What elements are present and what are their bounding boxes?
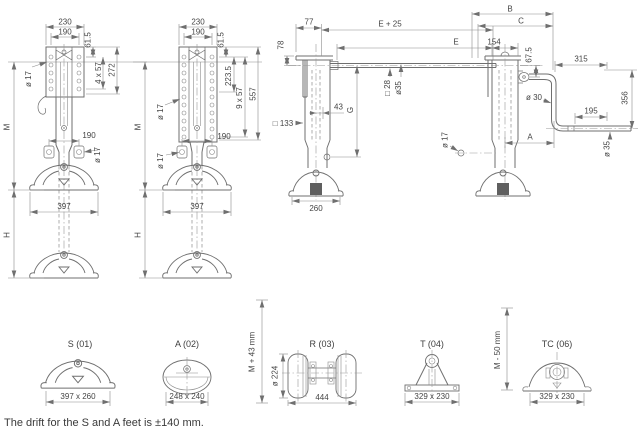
v1-dim-hole-pattern: 4 x 57 bbox=[94, 62, 103, 84]
v1-dim-hole-dia: ø 17 bbox=[24, 70, 33, 87]
v3-dim-shaft: E bbox=[453, 38, 458, 47]
v2-dim-upper-span: 223.5 bbox=[224, 65, 233, 86]
v2-dim-bolt-spacing: 190 bbox=[191, 28, 205, 37]
v1-dim-lift: H bbox=[3, 232, 12, 238]
v2-dim-lower-hole-dia: ø 17 bbox=[156, 152, 165, 169]
v3-dim-tube-size: □ 133 bbox=[273, 119, 294, 128]
v3-dim-shaft-plus: E + 25 bbox=[378, 20, 402, 29]
v2-dim-bracket-height: 557 bbox=[249, 87, 258, 101]
v3-dim-extension: G bbox=[346, 107, 355, 113]
v4-dim-arm-length: 315 bbox=[574, 55, 588, 64]
v1-dim-bolt-spacing: 190 bbox=[58, 28, 72, 37]
v4-dim-leg-depth: 154 bbox=[487, 38, 501, 47]
v2-dim-hole-dia: ø 17 bbox=[156, 103, 165, 120]
v4-dim-grip-length: 195 bbox=[584, 107, 598, 116]
foot-t-label: T (04) bbox=[420, 339, 444, 349]
foot-t-size: 329 x 230 bbox=[414, 392, 450, 401]
foot-a-label: A (02) bbox=[175, 339, 199, 349]
v3-dim-foot-depth: 260 bbox=[309, 204, 323, 213]
v2-dim-lower-bolt-spacing: 190 bbox=[217, 132, 231, 141]
v2-dim-foot-width: 397 bbox=[190, 202, 204, 211]
v4-dim-c: C bbox=[518, 17, 524, 26]
v2-dim-mount-height: M bbox=[134, 123, 143, 130]
foot-r-label: R (03) bbox=[309, 339, 334, 349]
drawing-caption: The drift for the S and A feet is ±140 m… bbox=[4, 417, 204, 429]
v4-dim-tube-dia: ø 30 bbox=[526, 93, 543, 102]
foot-s-size: 397 x 260 bbox=[60, 392, 96, 401]
v1-dim-foot-width: 397 bbox=[57, 202, 71, 211]
technical-drawing-page: 230 190 61.5 4 x 57 272 ø 17 M H 190 ø 1… bbox=[0, 0, 640, 440]
v4-dim-a: A bbox=[527, 133, 533, 142]
landing-gear-drawing: 230 190 61.5 4 x 57 272 ø 17 M H 190 ø 1… bbox=[0, 0, 640, 440]
v2-dim-top-offset: 61.5 bbox=[217, 32, 226, 48]
foot-tc-label: TC (06) bbox=[542, 339, 573, 349]
v1-dim-top-offset: 61.5 bbox=[84, 32, 93, 48]
v4-dim-crank-offset: 67.5 bbox=[525, 47, 534, 63]
v2-dim-hole-pattern: 9 x 57 bbox=[235, 87, 244, 109]
v1-dim-lower-bolt-spacing: 190 bbox=[82, 131, 96, 140]
v3-dim-leg-offset: 43 bbox=[334, 103, 343, 112]
v4-dim-pin-dia: ø 17 bbox=[441, 131, 450, 148]
v3-dim-front-offset: 77 bbox=[305, 18, 314, 27]
v1-dim-bracket-width: 230 bbox=[58, 18, 72, 27]
foot-r-wheel-dia: ø 224 bbox=[271, 365, 280, 386]
foot-tc-size: 329 x 230 bbox=[539, 392, 575, 401]
v1-dim-mount-height: M bbox=[3, 123, 12, 130]
v1-dim-bracket-height: 272 bbox=[108, 63, 117, 77]
foot-s-label: S (01) bbox=[68, 339, 93, 349]
v4-dim-drop: 356 bbox=[621, 91, 630, 105]
v1-dim-lower-hole-dia: ø 17 bbox=[93, 146, 102, 163]
v4-dim-grip-dia: ø 35 bbox=[603, 140, 612, 157]
v3-dim-shaft-square: □ 28 bbox=[383, 79, 392, 96]
foot-a-size: 248 x 240 bbox=[169, 392, 205, 401]
v3-dim-top-offset: 78 bbox=[277, 40, 286, 49]
v2-dim-bracket-width: 230 bbox=[191, 18, 205, 27]
foot-r-size: 444 bbox=[315, 393, 329, 402]
v3-dim-shaft-dia: ø35 bbox=[394, 81, 403, 95]
v2-dim-lift: H bbox=[134, 232, 143, 238]
v4-dim-b: B bbox=[507, 5, 512, 14]
foot-r-height-note: M + 43 mm bbox=[248, 332, 257, 373]
foot-tc-height-note: M - 50 mm bbox=[493, 331, 502, 370]
